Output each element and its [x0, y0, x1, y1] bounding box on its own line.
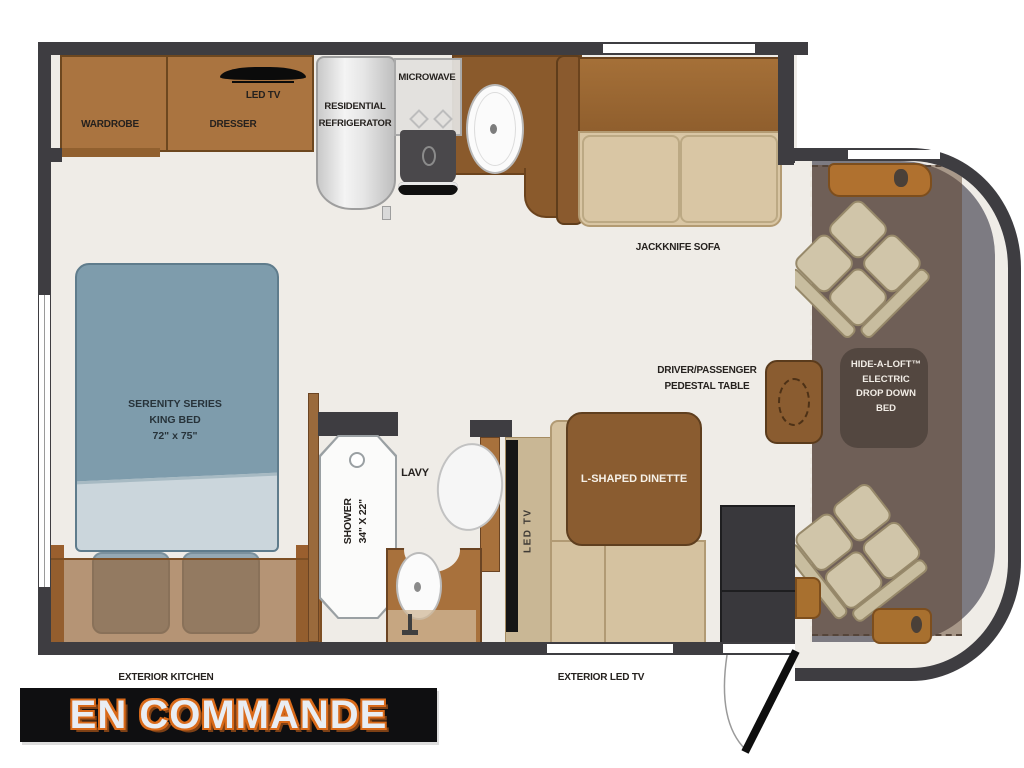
sofa-label: JACKKNIFE SOFA — [603, 242, 753, 254]
sofa-cushion — [680, 135, 778, 223]
range-base — [398, 182, 458, 195]
dinette-table: L-SHAPED DINETTE — [566, 412, 702, 546]
range-knob-icon — [422, 146, 436, 166]
wardrobe-label: WARDROBE — [60, 119, 160, 131]
wall-slide-notch — [38, 148, 62, 162]
cab-side-cabinet — [795, 577, 821, 619]
dinette-table-label: L-SHAPED DINETTE — [581, 473, 687, 485]
windshield-gap — [848, 150, 940, 159]
status-banner: EN COMMANDE — [20, 688, 437, 742]
door-swing-arc — [724, 655, 746, 750]
loft-label-line3: DROP DOWN — [820, 387, 952, 402]
entry-door — [690, 635, 990, 765]
king-bed: SERENITY SERIES KING BED 72" x 75" — [75, 263, 279, 552]
dashboard-console-icon — [894, 169, 908, 187]
pedestal-table-label: DRIVER/PASSENGER PEDESTAL TABLE — [632, 363, 782, 395]
king-bed-foot — [75, 472, 279, 552]
step-divider — [722, 590, 800, 592]
shower-wall — [318, 412, 398, 436]
bed-label-line1: SERENITY SERIES — [77, 397, 273, 413]
jackknife-sofa-seat — [578, 131, 782, 227]
exterior-kitchen-label: EXTERIOR KITCHEN — [91, 672, 241, 684]
dinette-wall-header — [470, 420, 512, 437]
jackknife-sofa-back — [578, 57, 782, 135]
floorplan-canvas: SERENITY SERIES KING BED 72" x 75" — [0, 0, 1024, 768]
cab-section: HIDE-A-LOFT™ ELECTRIC DROP DOWN BED — [795, 148, 1021, 681]
status-banner-text: EN COMMANDE — [70, 693, 388, 738]
toilet-plumbing-panel — [388, 610, 476, 646]
range-oven — [400, 130, 456, 184]
door-leaf — [745, 651, 796, 752]
hide-a-loft-label: HIDE-A-LOFT™ ELECTRIC DROP DOWN BED — [820, 358, 952, 417]
pedestal-label-line2: PEDESTAL TABLE — [632, 379, 782, 395]
wall-right-upper — [778, 42, 794, 165]
window-exterior-tv — [547, 644, 673, 653]
entry-steps — [720, 505, 802, 652]
exterior-tv-label: EXTERIOR LED TV — [526, 672, 676, 684]
dinette-tv-label: LED TV — [522, 476, 534, 586]
refrigerator-foot — [382, 206, 391, 220]
wardrobe-base — [60, 148, 160, 157]
exterior-kitchen-compartment — [40, 558, 322, 646]
bedroom-tv-label: LED TV — [213, 90, 313, 102]
loft-label-line1: HIDE-A-LOFT™ — [820, 358, 952, 373]
refrigerator-label: RESIDENTIAL REFRIGERATOR — [305, 102, 405, 130]
sofa-cushion — [582, 135, 680, 223]
plumbing-base-icon — [402, 630, 418, 635]
shower-label-line2: 34" X 22" — [356, 451, 371, 591]
wardrobe-cabinet — [60, 55, 170, 152]
bench-cushion-divider — [604, 542, 606, 646]
loft-label-line4: BED — [820, 402, 952, 417]
pedestal-table-top-icon — [778, 378, 810, 426]
kitchen-sink-icon — [466, 84, 524, 174]
toilet-flush-icon — [414, 582, 421, 592]
bed-label-line2: KING BED — [77, 413, 273, 429]
microwave-label: MICROWAVE — [377, 73, 477, 84]
pedestal-label-line1: DRIVER/PASSENGER — [632, 363, 782, 379]
fridge-label-line1: RESIDENTIAL — [305, 102, 405, 113]
bedroom-tv-stand — [232, 81, 294, 83]
console-cupholder-icon — [911, 616, 922, 633]
faucet-icon — [490, 124, 497, 134]
bedroom-tv-icon — [220, 67, 306, 80]
king-bed-label: SERENITY SERIES KING BED 72" x 75" — [77, 397, 273, 444]
dinette-tv-icon — [506, 440, 518, 632]
lav-label: LAVY — [390, 467, 440, 480]
shower-label-line1: SHOWER — [341, 451, 356, 591]
loft-label-line2: ELECTRIC — [820, 373, 952, 388]
bed-label-line3: 72" x 75" — [77, 429, 273, 445]
dresser-label: DRESSER — [183, 119, 283, 131]
window-sofa — [603, 44, 755, 53]
dinette-bench-seat — [550, 540, 706, 652]
dashboard — [828, 163, 932, 197]
window-bedroom-frame — [44, 295, 45, 587]
shower-label: SHOWER 34" X 22" — [341, 451, 371, 591]
fridge-label-line2: REFRIGERATOR — [305, 119, 405, 130]
